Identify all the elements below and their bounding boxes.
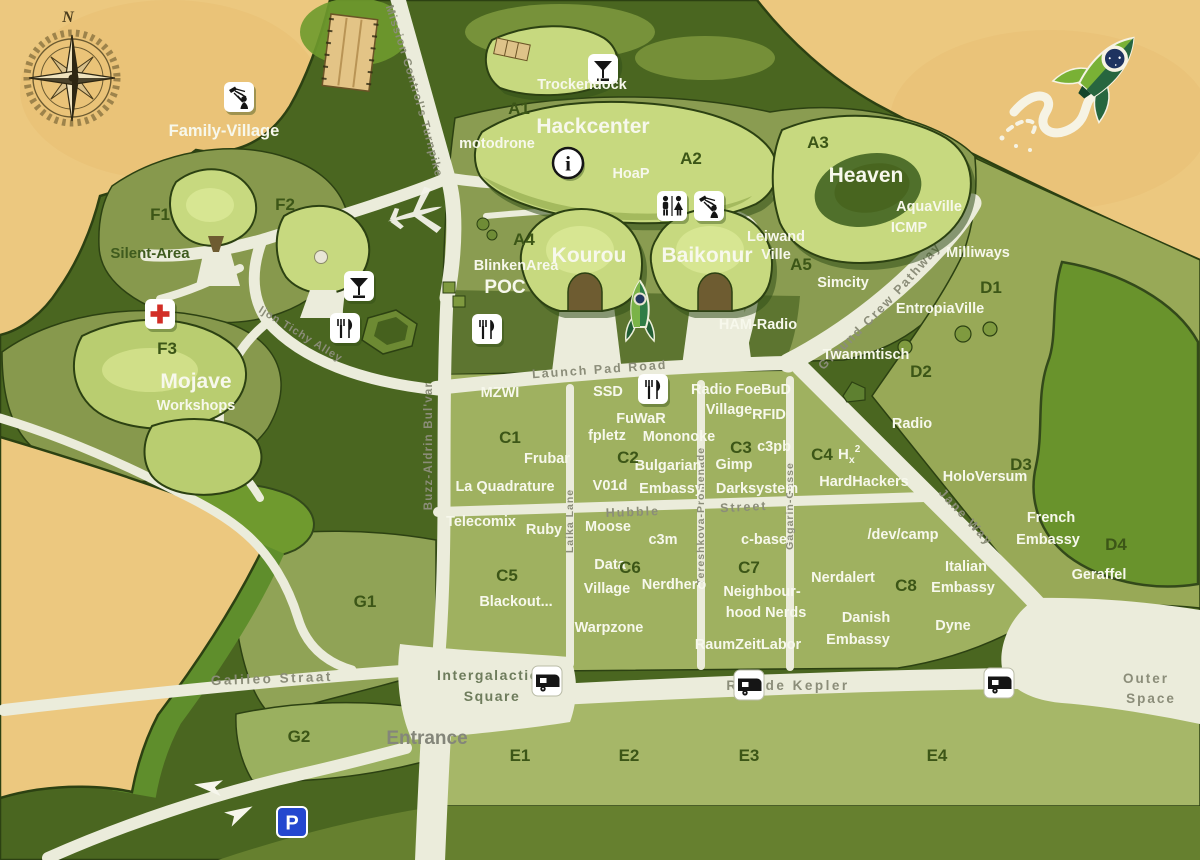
block-g1: G1 <box>354 592 377 611</box>
label-data-2: Village <box>584 581 630 597</box>
block-f3: F3 <box>157 339 177 358</box>
label-kourou: Kourou <box>552 244 627 267</box>
label-leiwand-2: Ville <box>761 247 791 263</box>
label-blinkenarea: BlinkenArea <box>474 258 560 274</box>
label-motodrone: motodrone <box>459 136 535 152</box>
label-foebud-2: Village <box>706 402 752 418</box>
label-ssd: SSD <box>593 384 623 400</box>
road-label-hubble: Hubble <box>605 504 660 520</box>
block-c7: C7 <box>738 558 760 577</box>
restaurant-icon <box>638 374 670 407</box>
label-hackcenter: Hackcenter <box>536 115 649 138</box>
label-v01d: V01d <box>593 478 628 494</box>
cocktail-icon <box>344 271 376 304</box>
label-fpletz: fpletz <box>588 428 626 444</box>
sign-intergalactic-1: Intergalactic <box>437 667 539 683</box>
block-e3: E3 <box>739 746 760 765</box>
label-italian-2: Embassy <box>931 580 995 596</box>
block-a2: A2 <box>680 149 702 168</box>
caravan-icon <box>734 670 764 700</box>
block-c1: C1 <box>499 428 521 447</box>
block-a5: A5 <box>790 255 812 274</box>
label-la-quadrature: La Quadrature <box>455 479 554 495</box>
sign-outer-1: Outer <box>1123 671 1169 686</box>
label-family-village: Family-Village <box>169 122 280 140</box>
label-geraffel: Geraffel <box>1072 567 1127 583</box>
label-baikonur: Baikonur <box>661 244 752 267</box>
label-mojave: Mojave <box>160 370 231 393</box>
sign-entrance: Entrance <box>386 728 467 749</box>
label-hoap: HoaP <box>612 166 649 182</box>
info-glyph: i <box>565 152 571 176</box>
label-ham-radio: HAM-Radio <box>719 317 797 333</box>
restaurant-icon <box>330 313 362 346</box>
label-mononoke: Mononoke <box>643 429 716 445</box>
block-d3: D3 <box>1010 455 1032 474</box>
label-icmp: ICMP <box>891 220 928 236</box>
label-fuwar: FuWaR <box>616 411 666 427</box>
label-radio: Radio <box>892 416 932 432</box>
restaurant-icon <box>472 314 504 347</box>
block-d4: D4 <box>1105 535 1127 554</box>
label-c-base: c-base <box>741 532 787 548</box>
wc-icon <box>657 191 689 224</box>
block-e4: E4 <box>927 746 948 765</box>
label-twammtisch: Twammtisch <box>823 347 910 363</box>
label-frubar: Frubar <box>524 451 570 467</box>
camp-map: Mission Control's Turnpike Ijon Tichy Al… <box>0 0 1200 860</box>
label-telecomix: Telecomix <box>446 514 516 530</box>
hx2-h: H <box>838 446 849 463</box>
first-aid-icon <box>145 299 177 332</box>
parking-glyph: P <box>285 813 298 835</box>
block-c5: C5 <box>496 566 518 585</box>
label-workshops: Workshops <box>157 398 236 414</box>
block-c4: C4 <box>811 445 833 464</box>
label-blackout: Blackout... <box>479 594 552 610</box>
hx2-x: x <box>849 454 855 466</box>
label-nerdhero: Nerdhero <box>642 577 707 593</box>
label-entropiaville: EntropiaVille <box>896 301 984 317</box>
label-darksystem: Darksystem <box>716 481 798 497</box>
label-foebud-1: Radio FoeBuD <box>691 382 791 398</box>
block-a4: A4 <box>513 230 535 249</box>
structure-mojave2 <box>145 419 262 495</box>
block-c2: C2 <box>617 448 639 467</box>
label-danish-2: Embassy <box>826 632 890 648</box>
label-leiwand-1: Leiwand <box>747 229 805 245</box>
block-a3: A3 <box>807 133 829 152</box>
label-trockendock: Trockendock <box>537 77 627 93</box>
label-rfid: RFID <box>752 407 786 423</box>
label-moose: Moose <box>585 519 631 535</box>
block-a1: A1 <box>508 99 530 118</box>
label-bulgarian-1: Bulgarian <box>635 458 702 474</box>
label-mzwi: MZWI <box>481 385 520 401</box>
label-dyne: Dyne <box>935 618 970 634</box>
road-label-laika: Laika Lane <box>564 489 576 553</box>
label-c3pb: c3pb <box>757 439 791 455</box>
label-raumzeitlabor: RaumZeitLabor <box>695 637 802 653</box>
label-hardhackers: HardHackers <box>819 474 908 490</box>
label-danish-1: Danish <box>842 610 890 626</box>
label-poc: POC <box>484 277 525 298</box>
block-c6: C6 <box>619 558 641 577</box>
label-neighbourhood-2: hood Nerds <box>726 605 807 621</box>
label-silent-area: Silent-Area <box>110 245 190 262</box>
caravan-icon <box>984 668 1014 698</box>
sign-intergalactic-2: Square <box>464 688 520 704</box>
block-g2: G2 <box>288 727 311 746</box>
hx2-exp: 2 <box>855 444 861 455</box>
label-bulgarian-2: Embassy <box>639 481 703 497</box>
sign-outer-2: Space <box>1126 691 1176 706</box>
block-f1: F1 <box>150 205 170 224</box>
label-french-2: Embassy <box>1016 532 1080 548</box>
block-f2: F2 <box>275 195 295 214</box>
block-c8: C8 <box>895 576 917 595</box>
structure-bridge <box>322 14 377 91</box>
shower-icon <box>694 191 726 224</box>
block-c3: C3 <box>730 438 752 457</box>
road-label-street: Street <box>720 499 768 515</box>
block-d1: D1 <box>980 278 1002 297</box>
parking-icon: P <box>277 807 307 837</box>
label-simcity: Simcity <box>817 275 869 291</box>
label-ruby: Ruby <box>526 522 562 538</box>
label-french-1: French <box>1027 510 1075 526</box>
road-label-buzz: Buzz-Aldrin Bul'var <box>423 382 435 510</box>
label-aquaville: AquaVille <box>896 199 962 215</box>
caravan-icon <box>532 666 562 696</box>
label-heaven: Heaven <box>829 164 904 187</box>
block-e1: E1 <box>510 746 531 765</box>
label-milliways: Milliways <box>946 245 1010 261</box>
label-gimp: Gimp <box>715 457 752 473</box>
label-devcamp: /dev/camp <box>868 527 939 543</box>
label-italian-1: Italian <box>945 559 987 575</box>
label-c3m: c3m <box>648 532 677 548</box>
block-e2: E2 <box>619 746 640 765</box>
shower-icon <box>224 82 256 115</box>
compass-north-label: N <box>61 9 75 26</box>
block-d2: D2 <box>910 362 932 381</box>
label-neighbourhood-1: Neighbour- <box>723 584 800 600</box>
label-warpzone: Warpzone <box>575 620 644 636</box>
label-nerdalert: Nerdalert <box>811 570 875 586</box>
